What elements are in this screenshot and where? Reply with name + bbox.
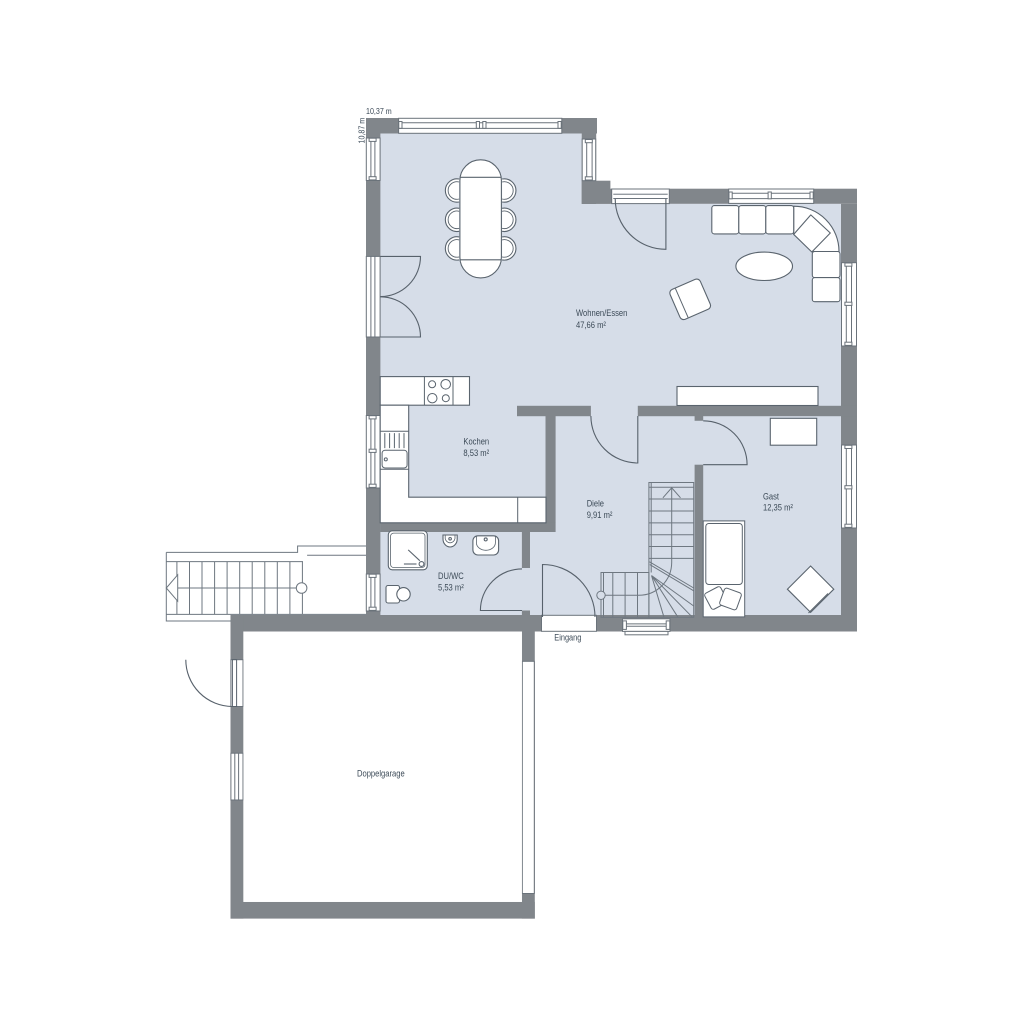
svg-text:47,66 m²: 47,66 m²	[576, 319, 606, 330]
svg-text:9,91 m²: 9,91 m²	[587, 509, 613, 520]
svg-text:Diele: Diele	[587, 498, 604, 509]
svg-text:Wohnen/Essen: Wohnen/Essen	[576, 307, 628, 318]
svg-text:10,87 m: 10,87 m	[357, 118, 367, 144]
svg-text:5,53 m²: 5,53 m²	[438, 582, 464, 593]
svg-text:Kochen: Kochen	[463, 436, 489, 447]
svg-text:12,35 m²: 12,35 m²	[763, 502, 793, 513]
svg-text:Doppelgarage: Doppelgarage	[357, 767, 405, 778]
svg-text:Eingang: Eingang	[554, 633, 581, 643]
svg-text:8,53 m²: 8,53 m²	[463, 447, 489, 458]
svg-text:10,37 m: 10,37 m	[366, 106, 392, 116]
svg-text:Gast: Gast	[763, 491, 780, 502]
svg-text:DU/WC: DU/WC	[438, 570, 464, 581]
